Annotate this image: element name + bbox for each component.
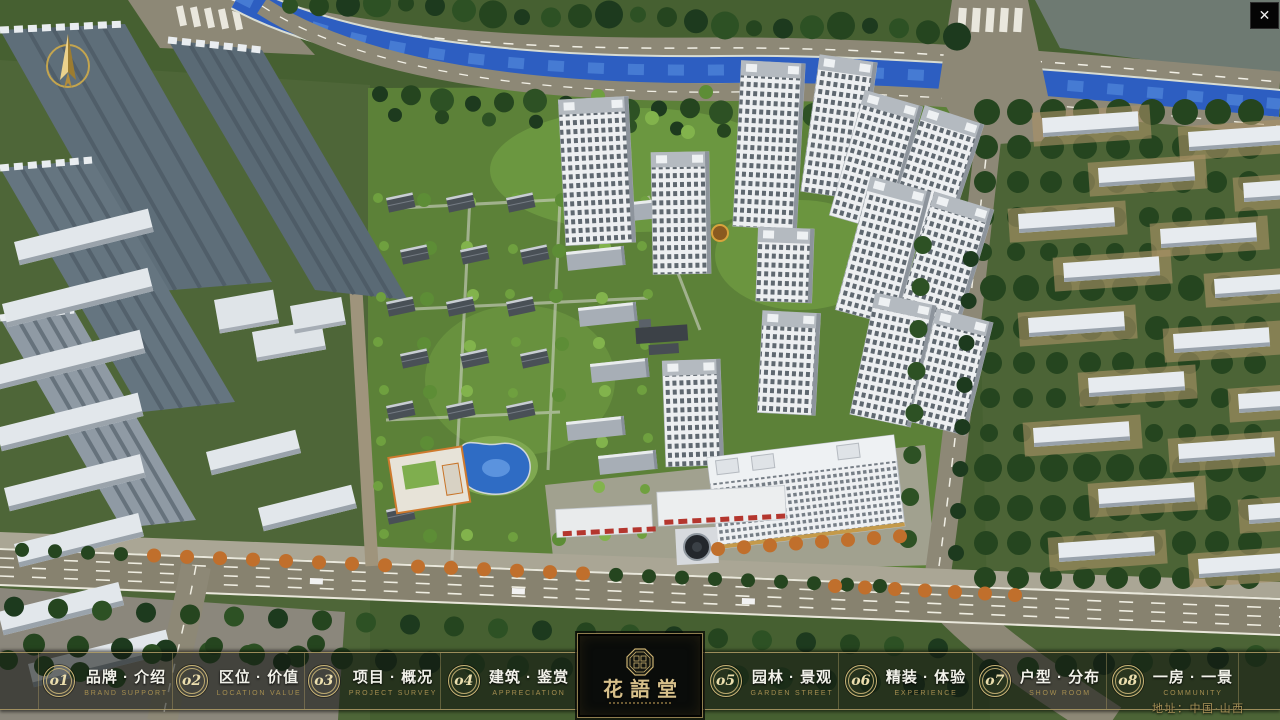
logo-seal-icon [626, 648, 654, 676]
close-button[interactable]: ✕ [1250, 2, 1279, 29]
map-viewport[interactable] [0, 0, 1280, 720]
nav-label: 户型 · 分布 [1020, 666, 1100, 687]
nav-item-project-survey[interactable]: o3 项目 · 概况 PROJECT SURVEY [304, 653, 440, 709]
nav-number-badge: o5 [710, 665, 742, 697]
nav-sublabel: SHOW ROOM [1029, 690, 1091, 697]
nav-number-badge: o4 [448, 665, 480, 697]
nav-label: 园林 · 景观 [752, 666, 832, 687]
nav-item-unit-distribution[interactable]: o7 户型 · 分布 SHOW ROOM [972, 653, 1106, 709]
nav-label: 品牌 · 介绍 [86, 666, 166, 687]
nav-label: 一房 · 一景 [1153, 666, 1233, 687]
nav-number-badge: o6 [845, 665, 877, 697]
nav-sublabel: PROJECT SURVEY [349, 690, 437, 697]
nav-label: 建筑 · 鉴赏 [489, 666, 569, 687]
nav-item-architecture[interactable]: o4 建筑 · 鉴赏 APPRECIATION [440, 653, 576, 709]
nav-label: 项目 · 概况 [353, 666, 433, 687]
nav-label: 区位 · 价值 [219, 666, 299, 687]
address-label: 地址：中国·山西 [1152, 700, 1245, 716]
app-root: ✕ o1 品牌 · 介绍 BRAND SUPPORT o2 区位 · 价值 LO… [0, 0, 1280, 720]
navbar-spacer [0, 653, 38, 709]
nav-sublabel: COMMUNITY [1163, 690, 1222, 697]
nav-number-badge: o7 [979, 665, 1011, 697]
logo-tagline-rule [609, 702, 671, 704]
nav-number-badge: o3 [308, 665, 340, 697]
close-icon: ✕ [1259, 8, 1271, 24]
nav-sublabel: BRAND SUPPORT [84, 690, 168, 697]
nav-number-badge: o1 [43, 665, 75, 697]
nav-number-badge: o8 [1112, 665, 1144, 697]
logo-title: 花語堂 [596, 679, 684, 699]
nav-sublabel: APPRECIATION [492, 690, 565, 697]
scene-3d-render [0, 0, 1280, 720]
nav-item-location-value[interactable]: o2 区位 · 价值 LOCATION VALUE [172, 653, 304, 709]
nav-item-fine-decoration[interactable]: o6 精装 · 体验 EXPERIENCE [838, 653, 972, 709]
nav-sublabel: LOCATION VALUE [217, 690, 302, 697]
nav-number-badge: o2 [176, 665, 208, 697]
nav-item-garden-landscape[interactable]: o5 园林 · 景观 GARDEN STREET [704, 653, 838, 709]
nav-sublabel: EXPERIENCE [894, 690, 957, 697]
nav-sublabel: GARDEN STREET [751, 690, 834, 697]
nav-label: 精装 · 体验 [886, 666, 966, 687]
project-logo[interactable]: 花語堂 [577, 633, 703, 718]
nav-item-brand-intro[interactable]: o1 品牌 · 介绍 BRAND SUPPORT [38, 653, 172, 709]
